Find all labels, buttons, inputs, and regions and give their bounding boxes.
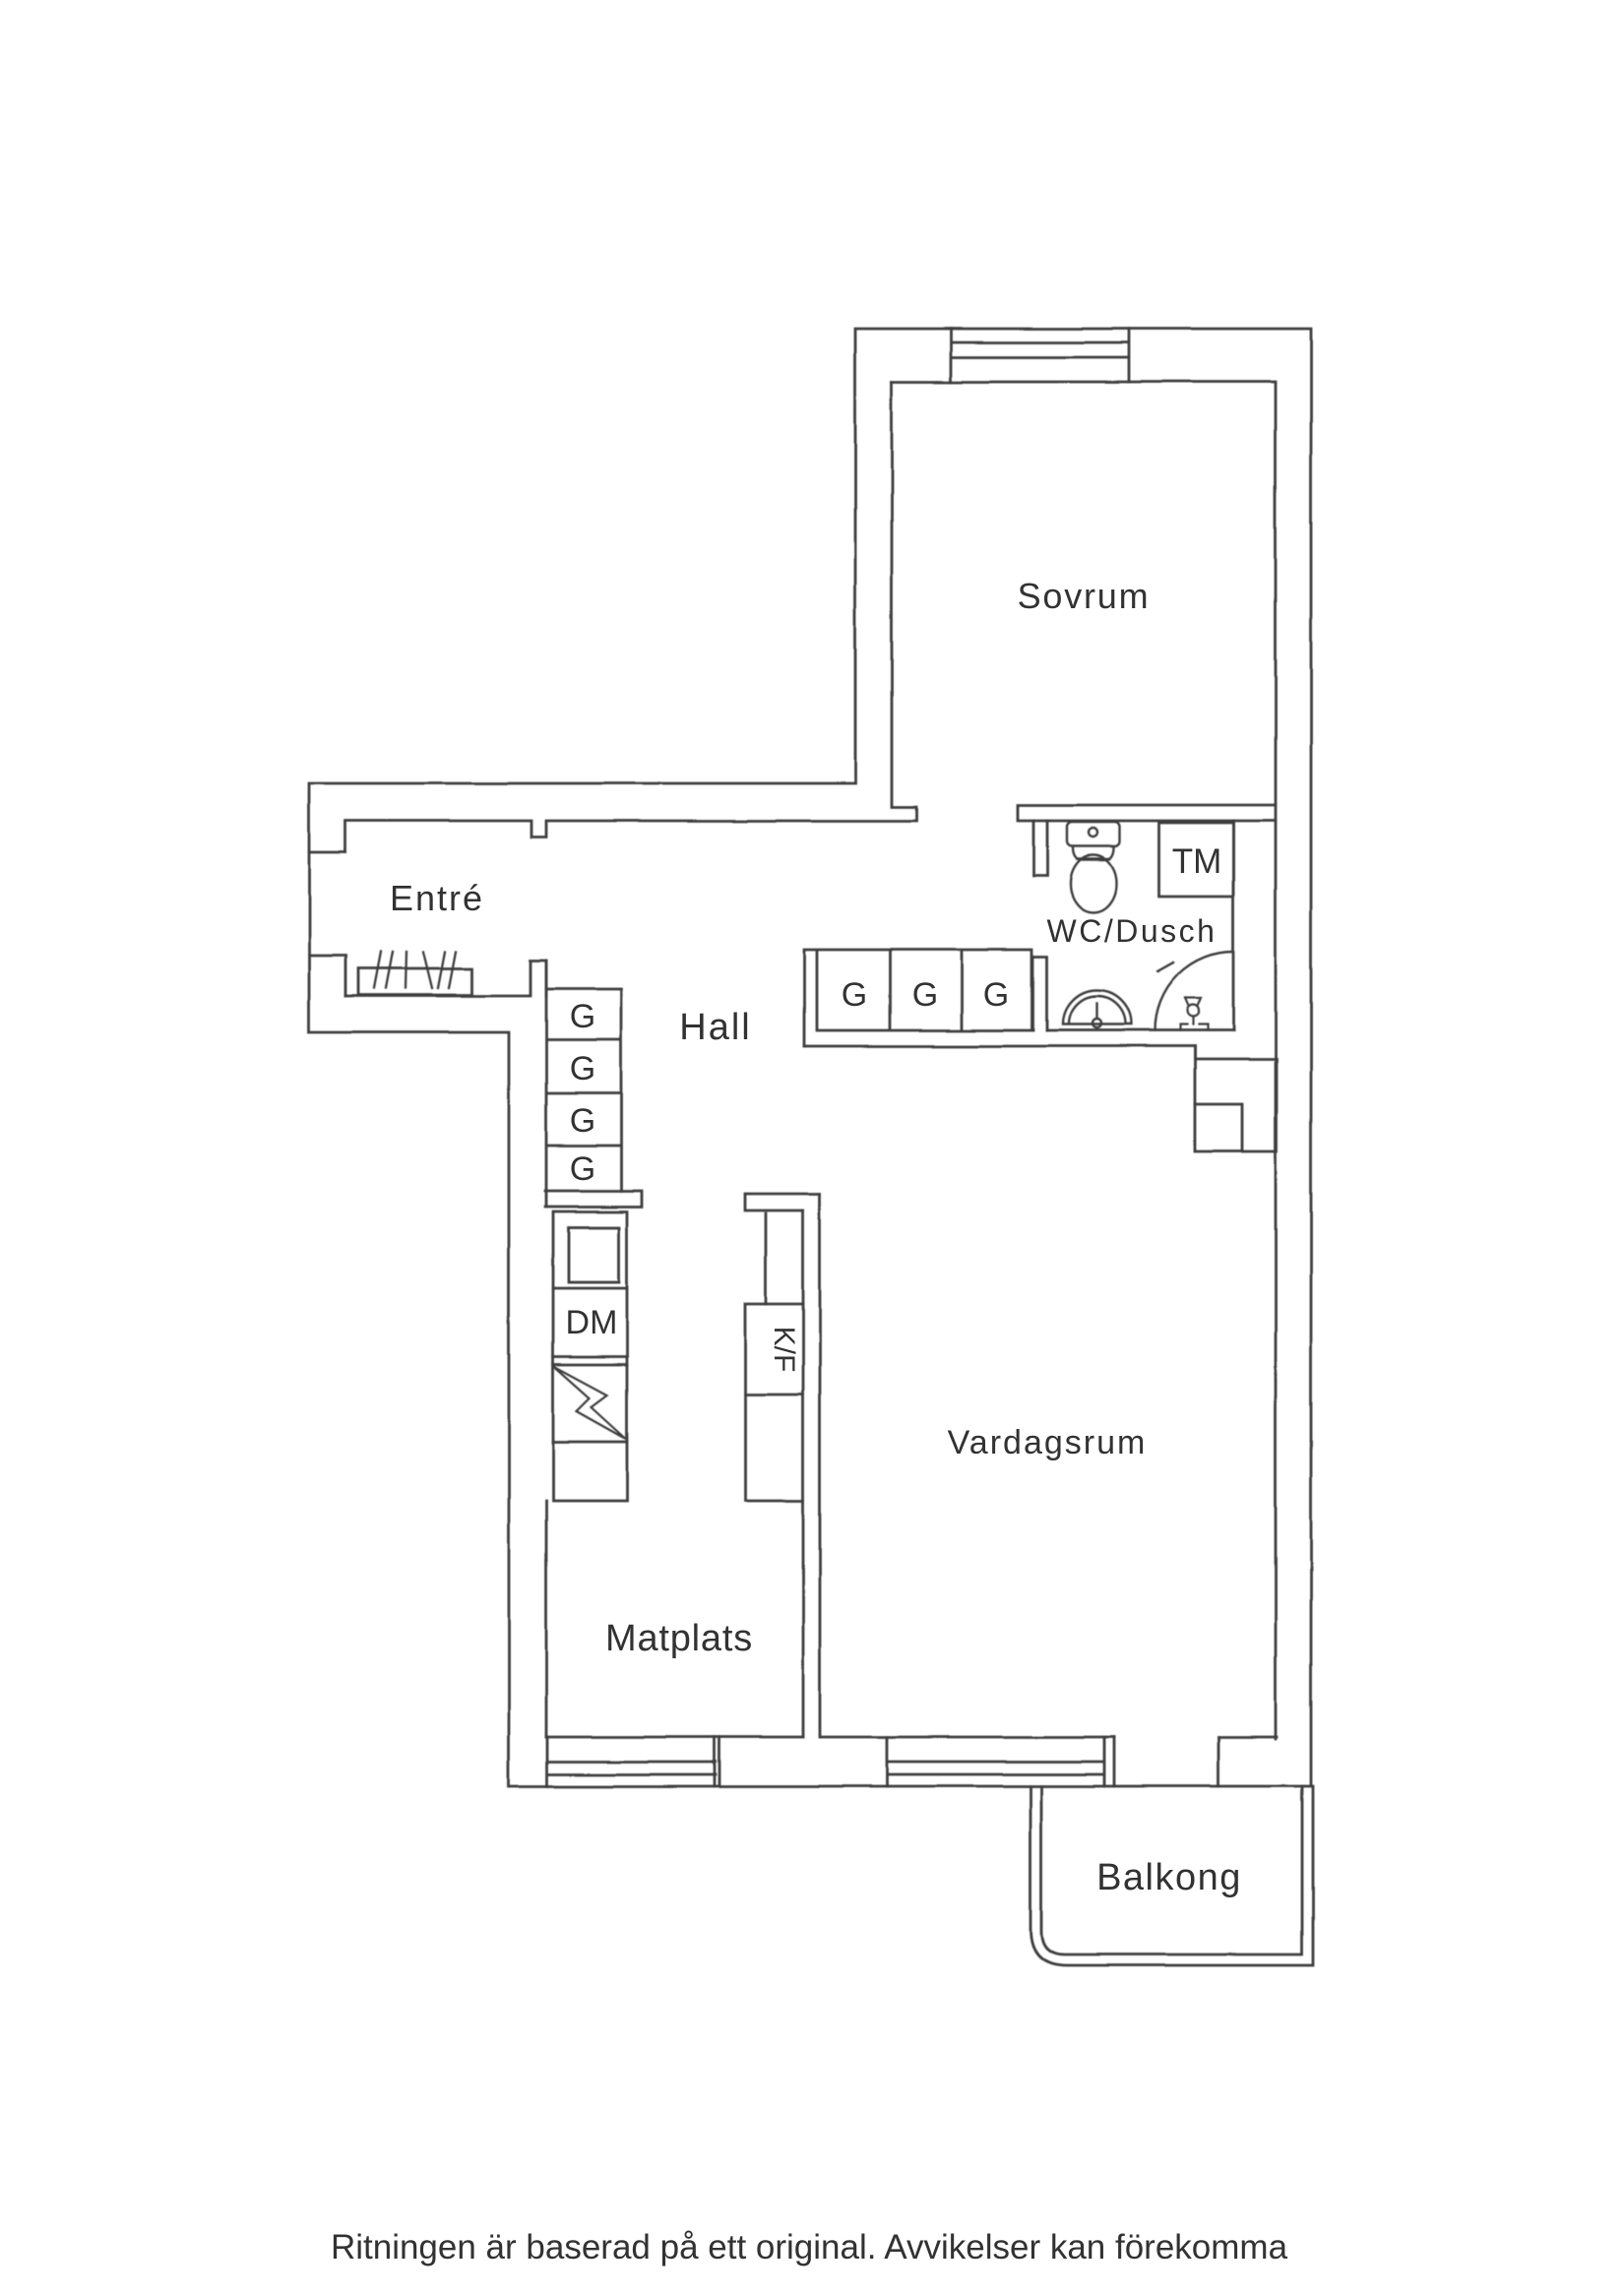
svg-text:Matplats: Matplats xyxy=(605,1618,753,1659)
svg-text:Hall: Hall xyxy=(679,1007,751,1048)
svg-text:G: G xyxy=(842,976,867,1014)
svg-text:WC/Dusch: WC/Dusch xyxy=(1047,913,1218,949)
svg-text:Vardagsrum: Vardagsrum xyxy=(948,1424,1148,1461)
svg-text:G: G xyxy=(570,1150,595,1188)
svg-text:G: G xyxy=(570,1050,595,1087)
svg-text:K/F: K/F xyxy=(768,1327,800,1373)
svg-text:DM: DM xyxy=(566,1304,618,1341)
svg-text:Balkong: Balkong xyxy=(1096,1857,1242,1898)
svg-text:G: G xyxy=(983,976,1009,1014)
svg-text:G: G xyxy=(912,976,938,1014)
svg-text:Sovrum: Sovrum xyxy=(1018,576,1151,616)
svg-text:Entré: Entré xyxy=(390,878,484,918)
svg-text:G: G xyxy=(570,1102,595,1140)
svg-text:TM: TM xyxy=(1172,842,1222,881)
svg-text:Ritningen är baserad på ett or: Ritningen är baserad på ett original. Av… xyxy=(331,2228,1288,2266)
svg-text:G: G xyxy=(570,998,595,1035)
